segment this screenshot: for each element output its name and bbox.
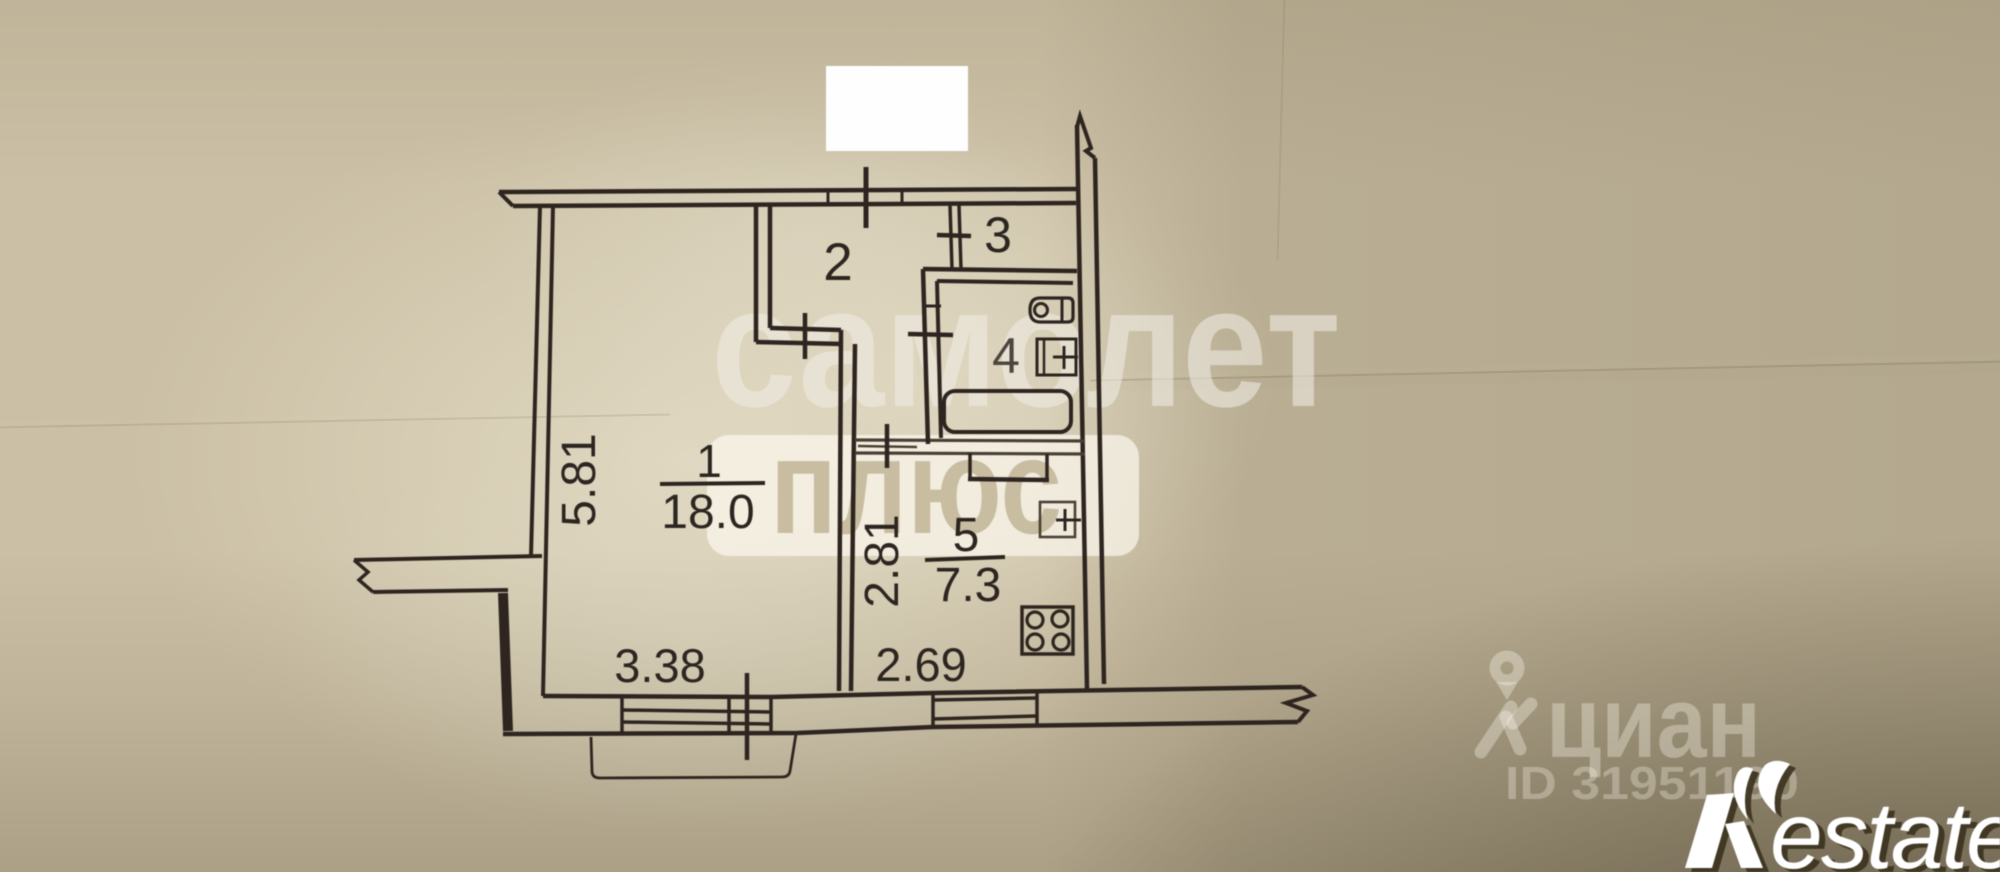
svg-text:4: 4 bbox=[992, 328, 1020, 384]
svg-text:1: 1 bbox=[696, 435, 722, 487]
svg-text:ID 31951190: ID 31951190 bbox=[1505, 757, 1799, 809]
svg-text:3.38: 3.38 bbox=[614, 639, 705, 692]
svg-text:2: 2 bbox=[823, 233, 852, 292]
svg-text:estate: estate bbox=[1770, 783, 2000, 872]
svg-text:5: 5 bbox=[953, 509, 980, 562]
svg-text:2.81: 2.81 bbox=[856, 514, 909, 607]
svg-text:18.0: 18.0 bbox=[661, 486, 754, 539]
svg-text:3: 3 bbox=[984, 207, 1012, 263]
svg-text:7.3: 7.3 bbox=[935, 559, 1002, 612]
svg-text:2.69: 2.69 bbox=[875, 638, 966, 691]
svg-text:5.81: 5.81 bbox=[553, 433, 606, 526]
